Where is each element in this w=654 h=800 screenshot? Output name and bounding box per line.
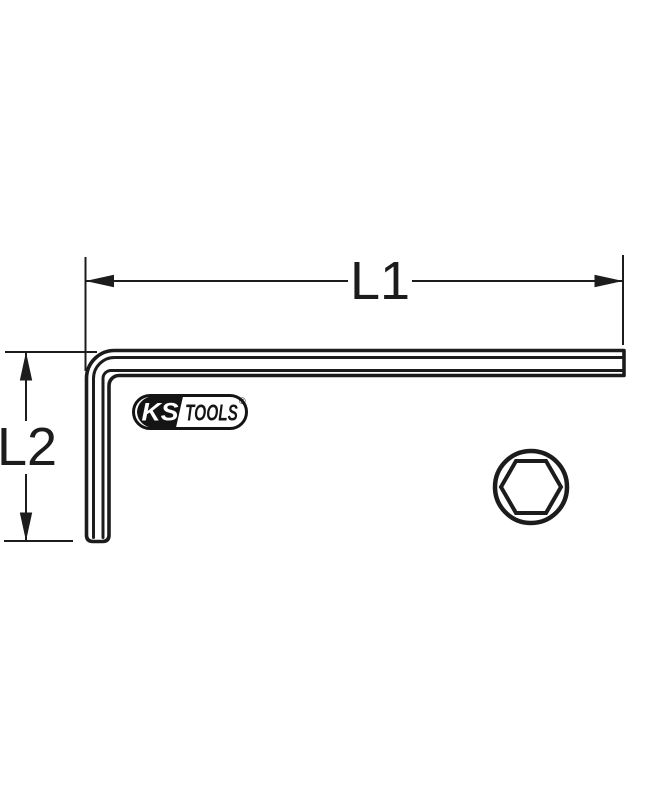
hex-socket-icon: [501, 461, 561, 513]
hex-socket-cross-section: [495, 451, 567, 523]
logo-tools-text: TOOLS: [185, 400, 238, 426]
diagram-svg: L1 L2 KS TOOLS ®: [0, 0, 654, 800]
logo-ks-text: KS: [142, 399, 179, 427]
hex-key-dimension-diagram: L1 L2 KS TOOLS ®: [0, 0, 654, 800]
logo-registered-mark: ®: [239, 396, 246, 406]
arrowhead-left-icon: [86, 275, 115, 287]
l1-label: L1: [350, 251, 410, 311]
arrowhead-down-icon: [20, 513, 32, 542]
ks-tools-logo: KS TOOLS ®: [134, 396, 247, 429]
l2-dimension: L2: [0, 352, 97, 541]
l2-label: L2: [0, 417, 57, 477]
arrowhead-right-icon: [595, 275, 624, 287]
arrowhead-up-icon: [20, 352, 32, 381]
